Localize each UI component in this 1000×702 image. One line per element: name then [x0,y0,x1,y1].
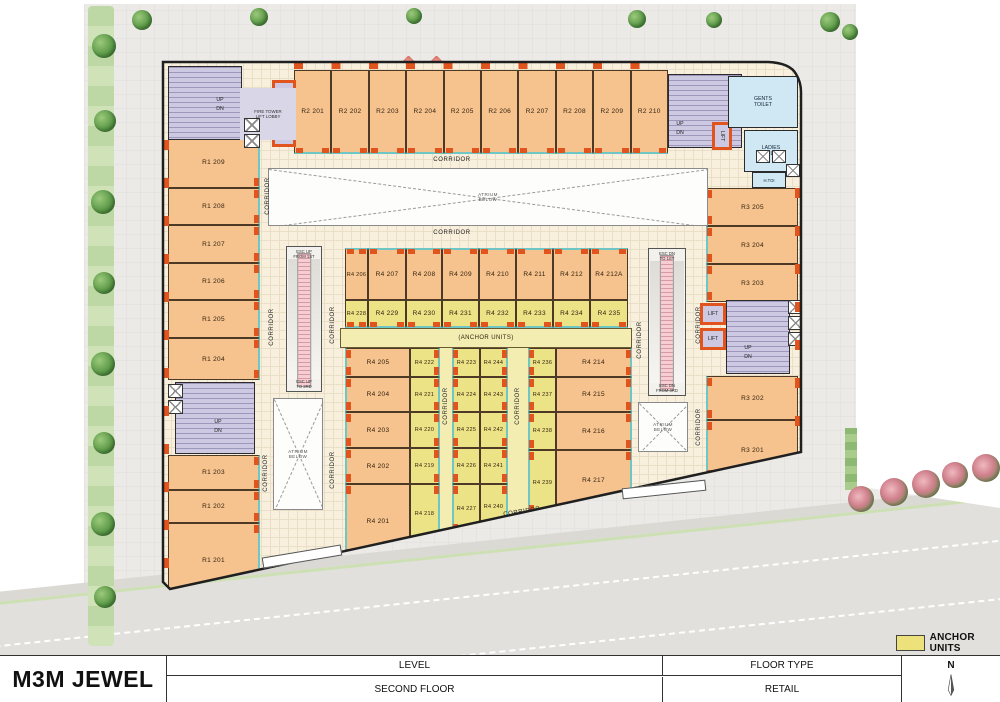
column-block [254,513,259,521]
room-label: R4 203 [367,427,390,434]
service-shaft [168,384,183,398]
floor-type-label: FLOOR TYPE [662,656,901,676]
column-block [509,148,516,153]
column-block [707,422,712,430]
room-R1-203: R1 203 [168,455,260,490]
corridor-label: CORRIDOR [330,451,336,488]
room-R4-239: R4 239 [528,450,556,515]
escalator: ESC UP FROM 1STESC UP TO 3RD [286,246,322,392]
column-block [254,492,259,500]
column-block [558,148,565,153]
column-block [502,474,507,482]
column-block [502,450,507,458]
room-R1-208: R1 208 [168,188,260,225]
column-block [507,249,514,254]
room-label: R3 202 [741,395,764,402]
staircase [726,300,790,374]
column-block [520,148,527,153]
column-block [707,378,712,386]
column-block [360,148,367,153]
column-block [555,249,562,254]
column-block [346,474,351,482]
tree-icon [706,12,722,28]
column-block [592,249,599,254]
escalator-note: ESC UP FROM 1ST [287,249,321,259]
room-label: R4 211 [523,271,545,278]
column-block [481,322,488,327]
column-block [371,148,378,153]
room-R3-205: R3 205 [706,188,798,226]
room-label: R4 231 [449,310,472,317]
room-label: R4 225 [457,427,477,433]
room-label: R4 232 [486,310,509,317]
service-shaft [168,400,183,414]
room-label: R2 210 [638,108,661,115]
legend-label: ANCHOR UNITS [930,632,1000,654]
column-block [529,379,534,387]
room-label: R4 240 [484,504,504,510]
corridor-label: CORRIDOR [443,387,449,424]
column-block [453,350,458,358]
tree-icon [820,12,840,32]
column-block [529,402,534,410]
room-R4-231: R4 231 [442,300,479,328]
corridor-label: CORRIDOR [330,306,336,343]
column-block [707,254,712,262]
room-label: R1 209 [202,159,225,166]
north-label: N [947,660,954,671]
escalator-steps [660,255,674,391]
room-R4-204: R4 204 [345,377,410,412]
column-block [626,367,631,375]
escalator-side [288,259,297,380]
column-block [453,367,458,375]
column-block [254,525,259,533]
room-label: R3 205 [741,204,764,211]
column-block [359,249,366,254]
corridor-label: CORRIDOR [696,408,702,445]
atrium-below: ATRIUM BELOW [268,168,708,226]
column-block [434,474,439,482]
room-R4-232: R4 232 [479,300,516,328]
room-R3-202: R3 202 [706,376,798,420]
room-label: R4 210 [486,271,509,278]
column-block [322,148,329,153]
room-label: R2 205 [451,108,474,115]
toilet: GENTS TOILET [728,76,798,128]
service-shaft [772,150,786,163]
column-block [453,402,458,410]
room-label: R1 207 [202,241,225,248]
escalator-note: ESC DN FROM 3RD [649,383,685,393]
anchor-units-band: (ANCHOR UNITS) [340,328,632,348]
column-block [346,367,351,375]
column-block [434,414,439,422]
column-block [397,148,404,153]
service-shaft [244,134,260,148]
column-block [659,148,666,153]
room-R2-208: R2 208 [556,70,593,154]
escalator-note: ESC DN TO 1ST [649,251,685,261]
column-block [544,249,551,254]
room-label: R4 224 [457,392,477,398]
column-block [254,340,259,348]
room-label: R4 219 [415,463,435,469]
corridor-label: CORRIDOR [433,157,470,163]
column-block [254,227,259,235]
column-block [254,178,259,186]
toilet: H.TOI [752,172,786,188]
tree-icon [132,10,152,30]
room-label: R4 220 [415,427,435,433]
tree-icon [91,190,115,214]
column-block [333,148,340,153]
room-R4-216: R4 216 [556,412,632,450]
tree-icon [406,8,422,24]
tree-icon [628,10,646,28]
column-block [254,457,259,465]
room-label: R4 221 [415,392,435,398]
column-block [502,402,507,410]
room-label: R2 201 [301,108,324,115]
floor-type-value: RETAIL [662,677,901,702]
column-block [626,350,631,358]
room-label: R2 207 [526,108,549,115]
column-block [626,440,631,448]
tree-icon [91,512,115,536]
room-R2-206: R2 206 [481,70,518,154]
column-block [453,450,458,458]
tree-icon [972,454,1000,482]
stairs-updn-label: UP DN [660,120,700,139]
room-label: R4 212 [560,271,583,278]
stairs-updn-label: UP DN [198,418,238,437]
column-block [626,379,631,387]
column-block [619,322,626,327]
room-R2-204: R2 204 [406,70,443,154]
column-block [434,350,439,358]
room-R3-204: R3 204 [706,226,798,264]
title-block: M3M JEWEL LEVEL SECOND FLOOR FLOOR TYPE … [0,655,1000,702]
column-block [502,438,507,446]
room-label: R4 236 [533,360,553,366]
atrium-label: ATRIUM BELOW [269,192,707,202]
room-label: R4 217 [582,477,605,484]
room-label: R4 216 [582,428,605,435]
column-block [502,379,507,387]
column-block [581,249,588,254]
escalator-side [674,261,683,384]
room-label: R2 206 [488,108,511,115]
column-block [584,148,591,153]
room-label: R1 205 [202,316,225,323]
room-R4-233: R4 233 [516,300,553,328]
tree-icon [92,34,116,58]
room-R4-210: R4 210 [479,248,516,300]
room-label: R4 230 [413,310,436,317]
room-R4-228: R4 228 [345,300,368,328]
column-block [370,322,377,327]
room-label: R4 235 [598,310,621,317]
corridor-label: CORRIDOR [433,230,470,236]
room-label: R1 204 [202,356,225,363]
column-block [444,322,451,327]
room-label: R4 206 [347,272,367,278]
column-block [433,322,440,327]
room-R4-224: R4 224 [452,377,480,412]
room-R2-205: R2 205 [444,70,481,154]
room-R4-244: R4 244 [480,348,508,377]
column-block [707,228,712,236]
anchor-units-swatch [896,635,925,651]
column-block [453,438,458,446]
room-label: R4 201 [367,518,390,525]
column-block [346,438,351,446]
wall-ticks [294,63,668,69]
column-block [408,322,415,327]
room-R4-223: R4 223 [452,348,480,377]
column-block [529,367,534,375]
column-block [453,486,458,494]
atrium-label: ATRIUM BELOW [639,422,687,432]
room-R2-207: R2 207 [518,70,555,154]
hedge-icon [845,428,857,490]
room-R4-234: R4 234 [553,300,590,328]
room-label: R4 233 [523,310,546,317]
column-block [254,215,259,223]
corridor-label: CORRIDOR [696,306,702,343]
column-block [595,148,602,153]
room-R4-222: R4 222 [410,348,440,377]
column-block [502,486,507,494]
room-label: R1 206 [202,278,225,285]
column-block [626,452,631,460]
room-label: R2 209 [601,108,624,115]
tree-icon [93,272,115,294]
room-R4-215: R4 215 [556,377,632,412]
room-label: R2 203 [376,108,399,115]
tree-icon [93,432,115,454]
room-label: R4 226 [457,463,477,469]
column-block [446,148,453,153]
room-R4-237: R4 237 [528,377,556,412]
anchor-corridor [508,330,528,525]
anchor-corridor [440,330,452,530]
column-block [626,414,631,422]
column-block [434,486,439,494]
room-label: R4 244 [484,360,504,366]
room-label: R3 203 [741,280,764,287]
floor-plan-sheet: (ANCHOR UNITS)R2 201R2 202R2 203R2 204R2… [0,0,1000,702]
room-R4-243: R4 243 [480,377,508,412]
lift: LIFT [700,303,726,325]
column-block [544,322,551,327]
escalator-side [650,261,659,384]
column-block [254,290,259,298]
room-R1-207: R1 207 [168,225,260,263]
column-block [444,249,451,254]
room-R1-205: R1 205 [168,300,260,338]
column-block [434,379,439,387]
room-label: R4 241 [484,463,504,469]
column-block [434,438,439,446]
column-block [254,253,259,261]
room-label: R4 202 [367,463,390,470]
legend: ANCHOR UNITS [896,632,1000,654]
project-title: M3M JEWEL [0,656,167,702]
room-R2-202: R2 202 [331,70,368,154]
room-label: R4 208 [413,271,436,278]
column-block [547,148,554,153]
column-block [408,148,415,153]
column-block [408,249,415,254]
column-block [397,322,404,327]
column-block [518,322,525,327]
column-block [346,414,351,422]
room-R4-230: R4 230 [406,300,442,328]
tree-icon [848,486,874,512]
room-label: R4 242 [484,427,504,433]
column-block [434,450,439,458]
room-label: R4 228 [347,311,367,317]
column-block [622,148,629,153]
column-block [581,322,588,327]
column-block [555,322,562,327]
room-R4-205: R4 205 [345,348,410,377]
room-R4-226: R4 226 [452,448,480,484]
hedge-icon [88,6,114,646]
room-R3-203: R3 203 [706,264,798,302]
column-block [453,414,458,422]
column-block [502,367,507,375]
room-label: R4 223 [457,360,477,366]
room-label: R4 205 [367,359,390,366]
column-block [254,265,259,273]
tree-icon [880,478,908,506]
column-block [359,322,366,327]
column-block [626,402,631,410]
column-block [346,402,351,410]
room-label: R4 214 [582,359,605,366]
service-shaft [786,164,800,177]
column-block [254,480,259,488]
atrium-below: ATRIUM BELOW [638,402,688,452]
room-label: R3 201 [741,447,764,454]
corridor-label: CORRIDOR [269,308,275,345]
room-label: R4 209 [449,271,472,278]
column-block [529,414,534,422]
column-block [707,266,712,274]
north-arrow-icon [944,671,958,699]
fire-tower-lift-lobby: FIRE TOWER LIFT LOBBY [240,88,296,140]
room-R4-208: R4 208 [406,248,442,300]
column-block [502,350,507,358]
room-R4-219: R4 219 [410,448,440,484]
escalator-note: ESC UP TO 3RD [287,379,321,389]
column-block [346,350,351,358]
column-block [254,328,259,336]
room-label: R1 203 [202,469,225,476]
room-label: R4 212A [595,271,622,278]
room-R4-229: R4 229 [368,300,406,328]
column-block [633,148,640,153]
room-label: R4 215 [582,391,605,398]
column-block [507,322,514,327]
column-block [592,322,599,327]
room-R1-202: R1 202 [168,490,260,523]
escalator-steps [297,253,311,387]
room-label: R4 222 [415,360,435,366]
column-block [529,452,534,460]
room-label: R1 202 [202,503,225,510]
column-block [434,367,439,375]
column-block [254,370,259,378]
lift: LIFT [700,328,726,350]
room-R2-201: R2 201 [294,70,331,154]
atrium-below: ATRIUM BELOW [273,398,323,510]
room-R4-242: R4 242 [480,412,508,448]
escalator-side [311,259,320,380]
room-label: R1 208 [202,203,225,210]
room-R4-225: R4 225 [452,412,480,448]
column-block [296,148,303,153]
column-block [472,148,479,153]
service-shaft [756,150,770,163]
column-block [435,148,442,153]
room-R4-238: R4 238 [528,412,556,450]
level-label: LEVEL [167,656,662,676]
tree-icon [250,8,268,26]
corridor-label: CORRIDOR [637,321,643,358]
column-block [254,302,259,310]
room-label: R4 204 [367,391,390,398]
room-label: R4 229 [376,310,399,317]
room-R4-203: R4 203 [345,412,410,448]
corridor-label: CORRIDOR [265,177,271,214]
column-block [619,249,626,254]
room-label: R3 204 [741,242,764,249]
column-block [346,450,351,458]
room-label: R4 227 [457,506,477,512]
column-block [529,350,534,358]
column-block [347,249,354,254]
room-label: R2 204 [414,108,437,115]
room-label: R4 218 [415,511,435,517]
column-block [347,322,354,327]
column-block [346,486,351,494]
tree-icon [94,586,116,608]
tree-icon [842,24,858,40]
column-block [453,379,458,387]
column-block [254,190,259,198]
escalator: ESC DN TO 1STESC DN FROM 3RD [648,248,686,396]
column-block [470,249,477,254]
room-label: R4 237 [533,392,553,398]
room-R2-209: R2 209 [593,70,630,154]
room-R2-210: R2 210 [631,70,668,154]
room-R4-236: R4 236 [528,348,556,377]
north-compass: N [901,656,1000,702]
room-R4-202: R4 202 [345,448,410,484]
room-R1-204: R1 204 [168,338,260,380]
stairs-updn-label: UP DN [200,96,240,115]
room-R1-206: R1 206 [168,263,260,300]
corridor-label: CORRIDOR [263,454,269,491]
room-label: R4 238 [533,428,553,434]
tree-icon [94,110,116,132]
tree-icon [942,462,968,488]
room-R4-214: R4 214 [556,348,632,377]
